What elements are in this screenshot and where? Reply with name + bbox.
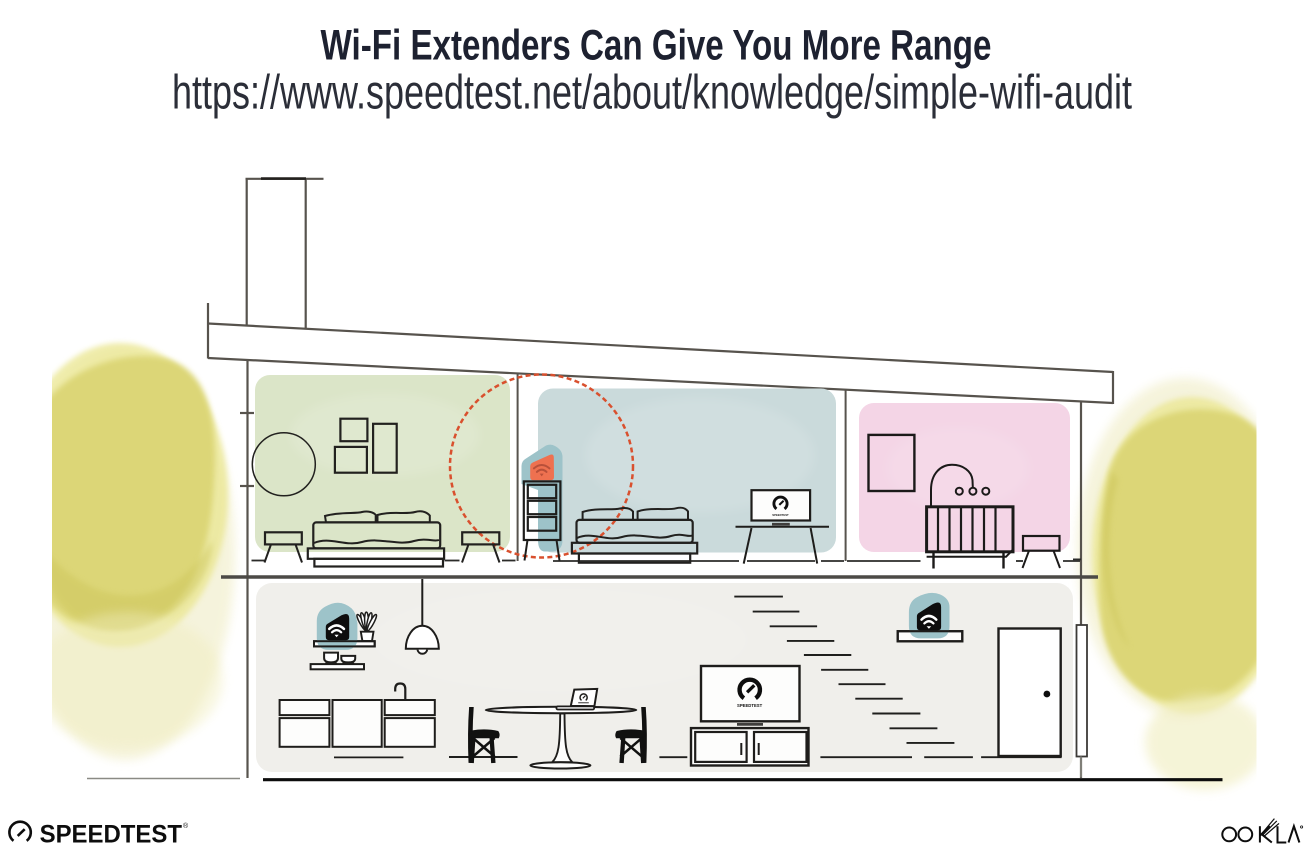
svg-text:https://www.speedtest.net/abou: https://www.speedtest.net/about/knowledg… <box>172 65 1132 119</box>
svg-text:SPEEDTEST: SPEEDTEST <box>40 821 183 849</box>
svg-text:Wi-Fi Extenders Can Give You M: Wi-Fi Extenders Can Give You More Range <box>321 22 992 70</box>
svg-text:®: ® <box>183 822 189 830</box>
svg-text:SPEEDTEST: SPEEDTEST <box>737 703 762 708</box>
svg-text:SPEEDTEST: SPEEDTEST <box>772 513 789 517</box>
